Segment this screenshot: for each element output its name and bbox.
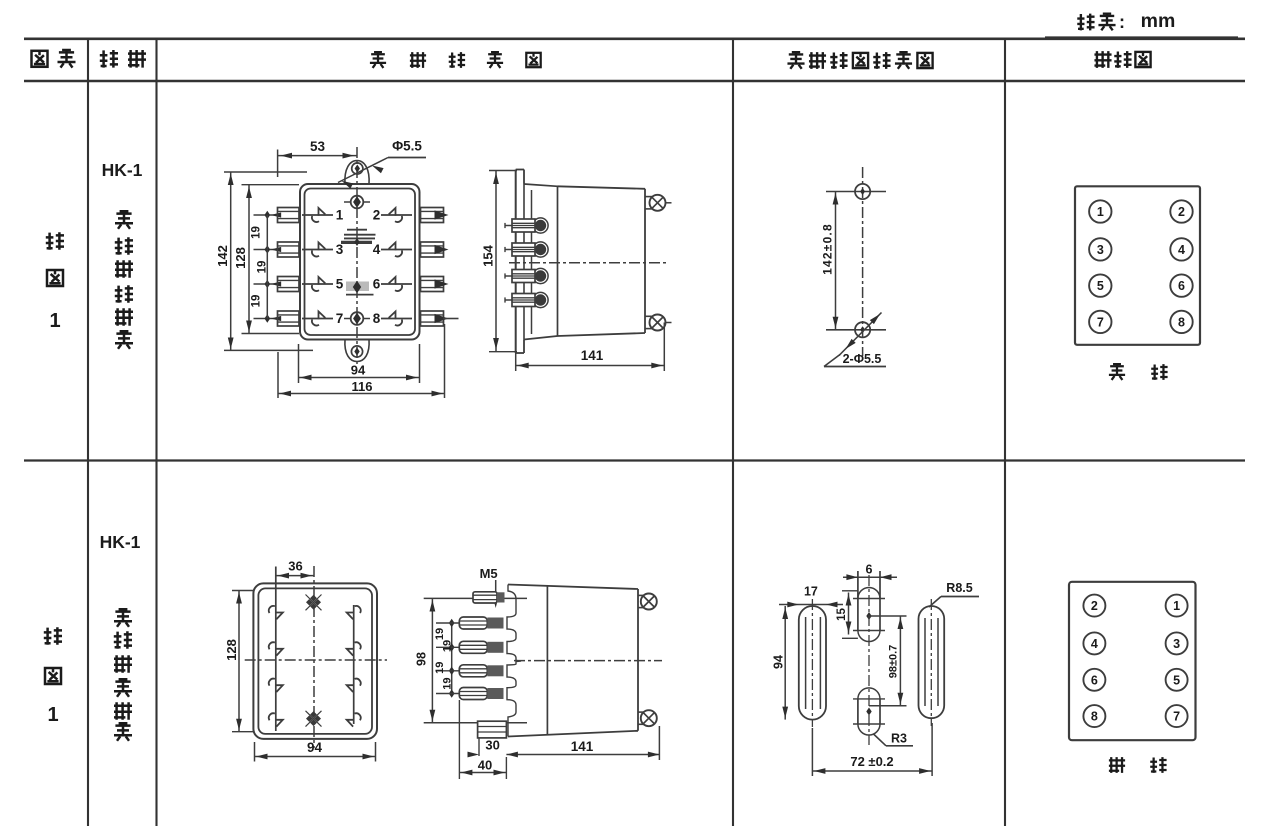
- svg-text:R8.5: R8.5: [946, 581, 972, 595]
- svg-text:5: 5: [1173, 673, 1180, 687]
- svg-text:5: 5: [336, 277, 344, 292]
- svg-text:8: 8: [1091, 710, 1098, 724]
- svg-text:19: 19: [434, 662, 446, 674]
- svg-text:4: 4: [1178, 243, 1185, 257]
- svg-text:3: 3: [336, 242, 344, 257]
- svg-text::: :: [1119, 12, 1125, 32]
- svg-text:36: 36: [288, 559, 302, 574]
- svg-text:M5: M5: [480, 566, 498, 581]
- svg-text:5: 5: [1097, 279, 1104, 293]
- svg-text:7: 7: [336, 311, 344, 326]
- svg-text:6: 6: [373, 277, 381, 292]
- svg-text:8: 8: [373, 311, 381, 326]
- svg-text:94: 94: [351, 363, 366, 378]
- svg-text:2: 2: [1091, 599, 1098, 613]
- svg-text:128: 128: [224, 639, 239, 661]
- svg-text:7: 7: [1097, 315, 1104, 329]
- svg-text:6: 6: [1178, 279, 1185, 293]
- svg-text:72 ±0.2: 72 ±0.2: [850, 754, 893, 769]
- svg-text:3: 3: [1173, 637, 1180, 651]
- svg-text:98±0.7: 98±0.7: [888, 645, 900, 679]
- svg-text:94: 94: [771, 655, 785, 669]
- svg-text:6: 6: [1091, 673, 1098, 687]
- svg-text:19: 19: [441, 640, 453, 652]
- svg-text:3: 3: [1097, 243, 1104, 257]
- svg-text:116: 116: [352, 379, 373, 394]
- svg-text:40: 40: [478, 757, 492, 772]
- svg-text:30: 30: [485, 738, 499, 753]
- svg-text:141: 141: [581, 348, 604, 363]
- svg-text:19: 19: [251, 226, 263, 239]
- svg-text:128: 128: [233, 247, 248, 269]
- svg-text:19: 19: [441, 677, 453, 689]
- svg-text:141: 141: [571, 739, 594, 754]
- svg-text:1: 1: [47, 704, 58, 726]
- svg-text:1: 1: [1173, 599, 1180, 613]
- svg-text:Φ5.5: Φ5.5: [392, 139, 422, 154]
- svg-text:2: 2: [1178, 205, 1185, 219]
- svg-text:19: 19: [257, 261, 269, 274]
- svg-text:142±0.8: 142±0.8: [821, 223, 835, 275]
- svg-text:15: 15: [836, 608, 848, 621]
- svg-text:19: 19: [251, 295, 263, 308]
- svg-text:4: 4: [1091, 637, 1098, 651]
- svg-text:1: 1: [336, 208, 344, 223]
- svg-text:8: 8: [1178, 315, 1185, 329]
- svg-text:2-Φ5.5: 2-Φ5.5: [843, 352, 882, 366]
- svg-text:154: 154: [481, 244, 496, 266]
- svg-text:HK-1: HK-1: [100, 532, 141, 552]
- svg-text:98: 98: [415, 652, 429, 666]
- svg-text:142: 142: [215, 245, 230, 267]
- svg-text:mm: mm: [1141, 10, 1176, 32]
- svg-text:94: 94: [307, 740, 323, 755]
- svg-text:6: 6: [866, 563, 873, 577]
- svg-text:R3: R3: [891, 732, 907, 746]
- svg-text:7: 7: [1173, 710, 1180, 724]
- svg-text:1: 1: [49, 310, 60, 332]
- svg-text:1: 1: [1097, 205, 1104, 219]
- svg-text:4: 4: [373, 242, 381, 257]
- svg-text:HK-1: HK-1: [102, 160, 143, 180]
- svg-text:19: 19: [434, 628, 446, 640]
- svg-text:17: 17: [804, 585, 818, 599]
- svg-text:2: 2: [373, 208, 381, 223]
- svg-text:53: 53: [310, 139, 326, 154]
